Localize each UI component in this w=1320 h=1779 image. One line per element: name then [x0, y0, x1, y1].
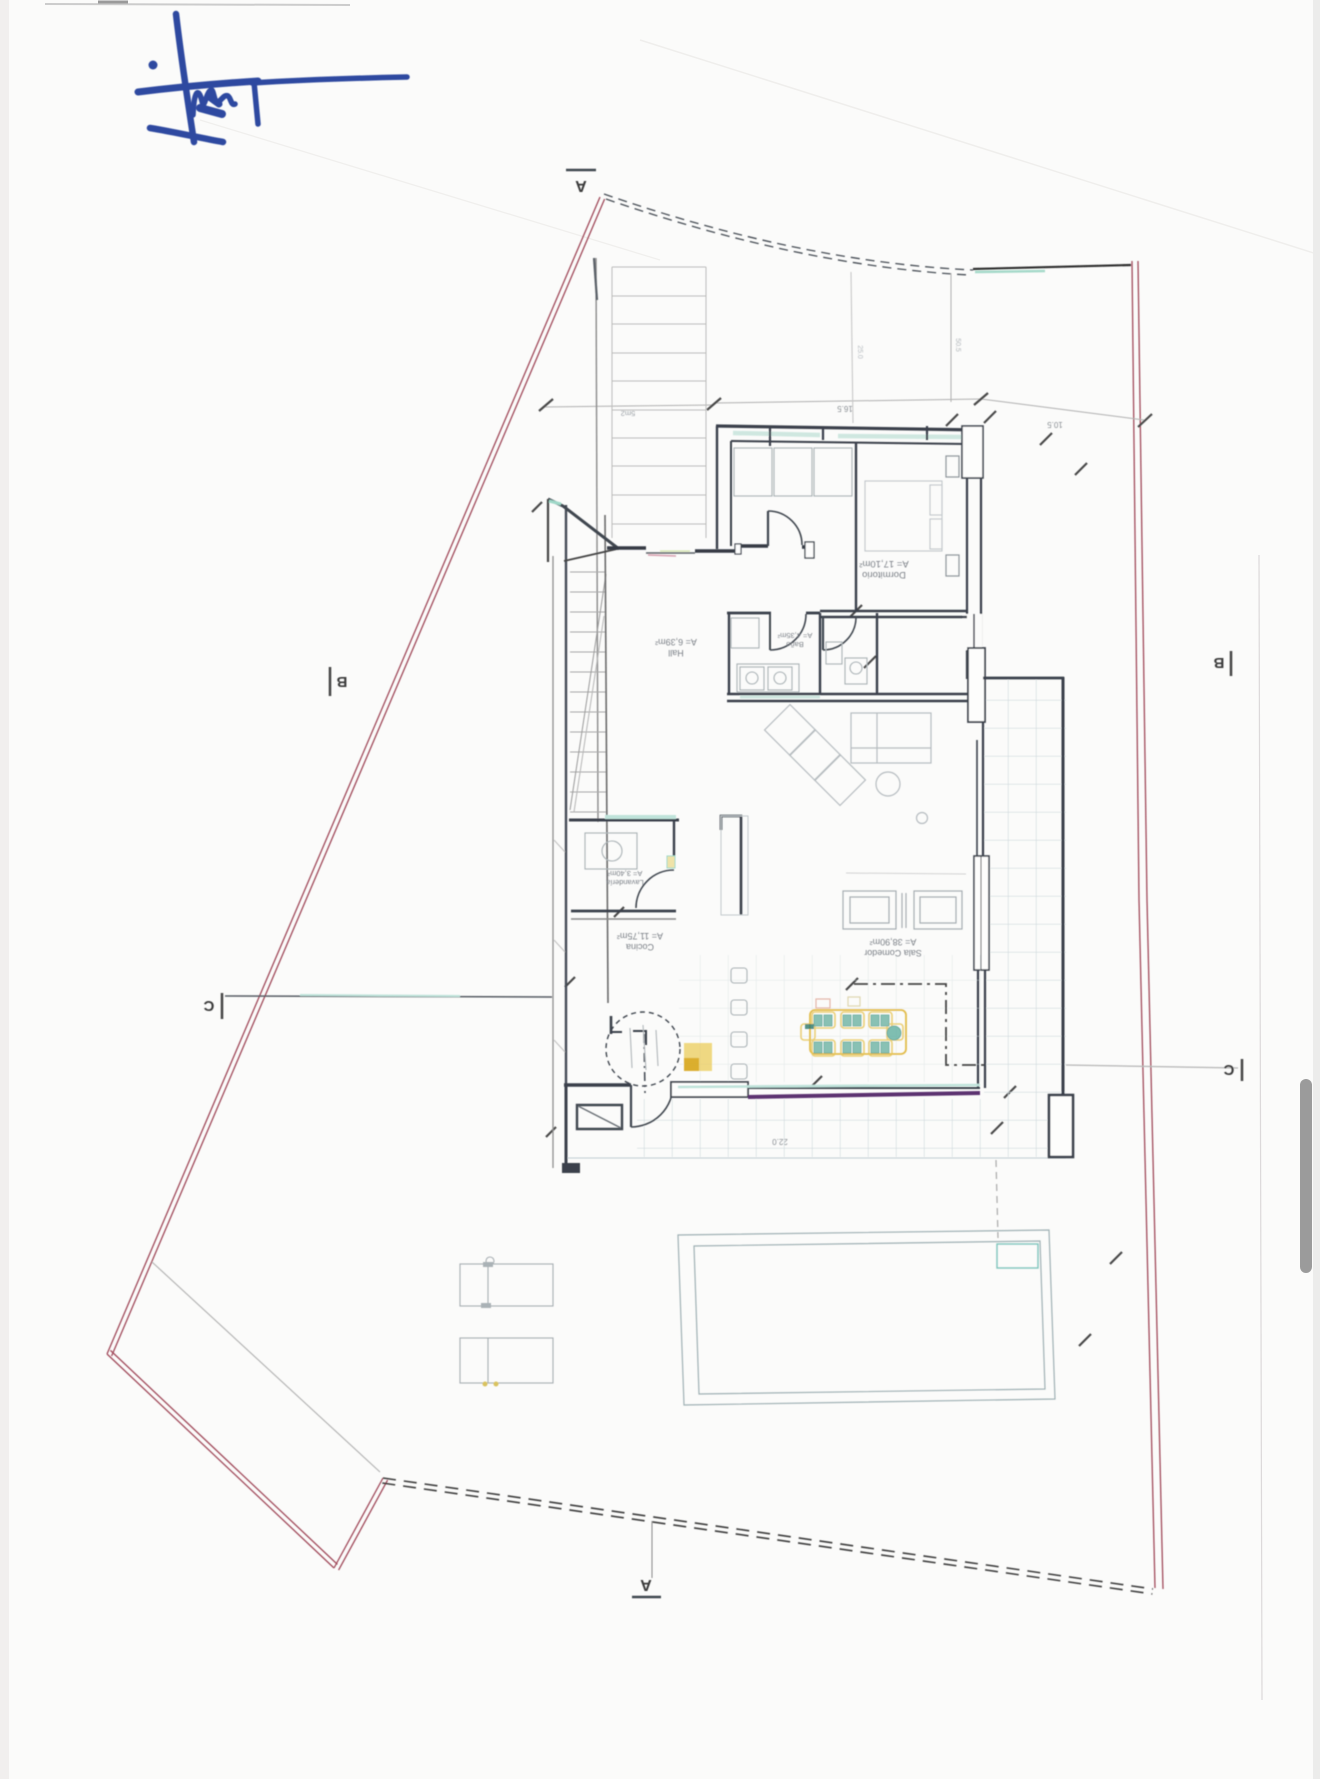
svg-text:25.0: 25.0: [856, 345, 863, 359]
svg-text:A= 38,90m²: A= 38,90m²: [870, 937, 917, 947]
svg-text:B: B: [1213, 654, 1224, 671]
svg-text:Lavandería: Lavandería: [605, 878, 643, 887]
svg-text:A= 11,75m²: A= 11,75m²: [617, 931, 663, 941]
svg-text:A= 4,35m²: A= 4,35m²: [777, 631, 812, 640]
svg-text:C: C: [1223, 1061, 1234, 1078]
svg-text:10.5: 10.5: [1047, 420, 1063, 429]
svg-text:Sala Comedor: Sala Comedor: [864, 948, 922, 958]
svg-text:B: B: [336, 673, 347, 690]
svg-text:Baño: Baño: [786, 640, 804, 649]
svg-text:Cocina: Cocina: [626, 942, 654, 952]
svg-text:A: A: [640, 1576, 652, 1593]
svg-text:Hall: Hall: [668, 648, 684, 658]
svg-text:A= 17,10m²: A= 17,10m²: [859, 558, 908, 569]
svg-text:Dormitorio: Dormitorio: [862, 569, 906, 580]
svg-text:50.5: 50.5: [954, 338, 961, 352]
svg-text:C: C: [203, 997, 214, 1014]
svg-text:A= 3,40m²: A= 3,40m²: [607, 869, 642, 878]
svg-text:A= 6,39m²: A= 6,39m²: [655, 637, 697, 647]
svg-text:16.5: 16.5: [837, 404, 853, 413]
svg-text:A: A: [575, 177, 587, 194]
